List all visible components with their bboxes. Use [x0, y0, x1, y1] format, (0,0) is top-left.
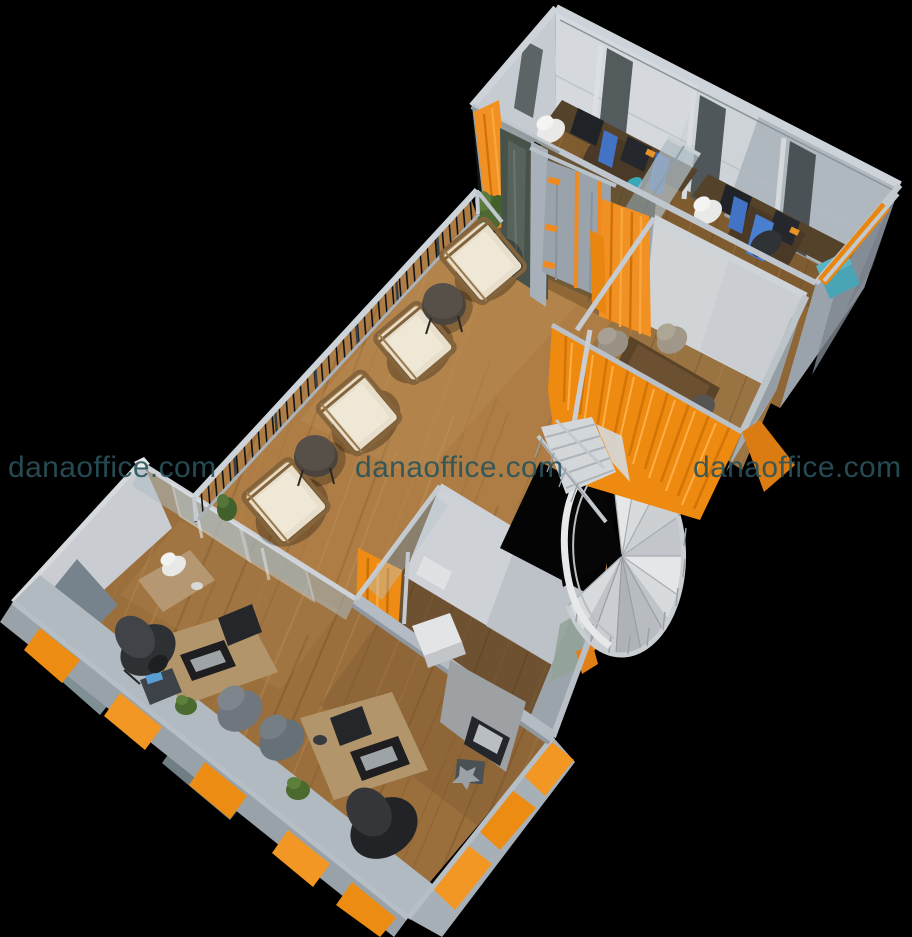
svg-text:danaoffice.com: danaoffice.com	[8, 451, 217, 484]
svg-text:danaoffice.com: danaoffice.com	[355, 451, 564, 484]
svg-text:danaoffice.com: danaoffice.com	[693, 451, 902, 484]
